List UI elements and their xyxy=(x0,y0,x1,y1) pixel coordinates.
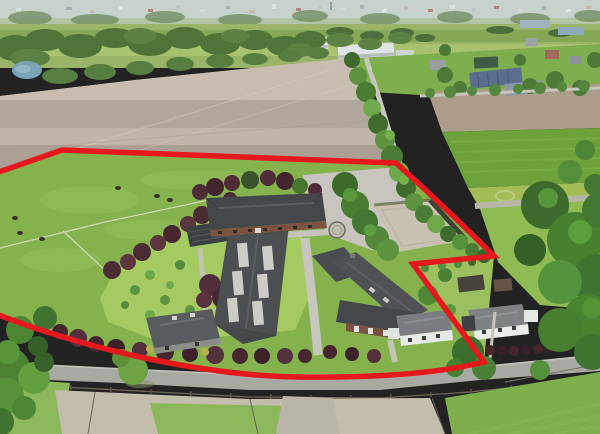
entrance-drive xyxy=(276,396,340,434)
stable-door xyxy=(255,228,261,233)
guest-house-wing xyxy=(388,328,399,339)
neighbor-garage xyxy=(461,315,475,331)
grass-right xyxy=(445,372,600,434)
aerial-photo xyxy=(0,0,600,434)
lake-highlight xyxy=(15,65,31,73)
round-pen xyxy=(329,222,345,238)
chimney xyxy=(350,254,355,258)
sport-court xyxy=(474,56,499,68)
red-roof-house xyxy=(545,50,559,59)
